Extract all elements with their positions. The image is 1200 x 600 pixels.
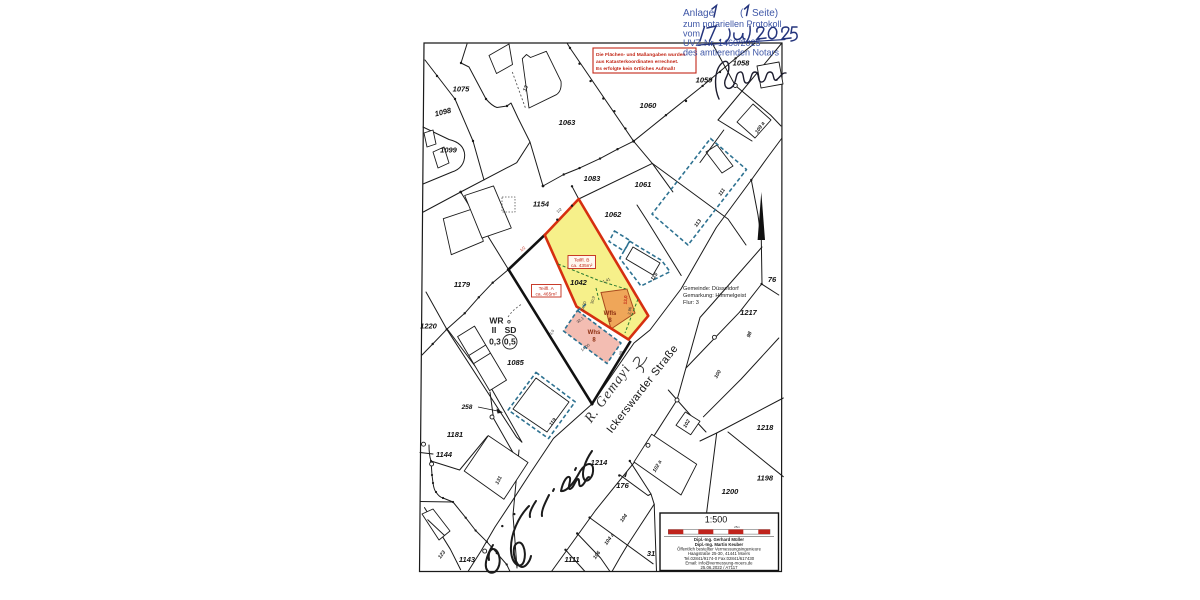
svg-text:1181: 1181 — [447, 430, 463, 439]
svg-text:Die Flächen- und Maßangaben wu: Die Flächen- und Maßangaben wurden — [596, 52, 685, 58]
svg-text:25m: 25m — [734, 525, 740, 529]
svg-text:176: 176 — [616, 481, 629, 490]
svg-text:SD: SD — [505, 325, 517, 335]
svg-text:Anlage: Anlage — [683, 8, 715, 19]
svg-text:1217: 1217 — [740, 308, 758, 317]
svg-text:1143: 1143 — [459, 555, 476, 564]
svg-text:1059: 1059 — [696, 76, 714, 85]
svg-text:1075: 1075 — [453, 85, 471, 94]
svg-text:0,3: 0,3 — [489, 337, 501, 347]
svg-text:31: 31 — [647, 549, 655, 558]
svg-text:1061: 1061 — [635, 180, 652, 189]
svg-text:0,5: 0,5 — [504, 336, 516, 346]
svg-text:1058: 1058 — [733, 59, 751, 68]
svg-text:1144: 1144 — [436, 450, 453, 459]
svg-text:Teilfl. A: Teilfl. A — [539, 286, 555, 292]
svg-text:zum notariellen Protokoll: zum notariellen Protokoll — [683, 19, 782, 29]
svg-text:vom: vom — [683, 29, 700, 39]
svg-text:II: II — [492, 325, 497, 335]
svg-text:WR: WR — [489, 316, 503, 326]
svg-text:13,0: 13,0 — [623, 295, 629, 305]
svg-text:1042: 1042 — [570, 278, 588, 287]
svg-text:Wfls: Wfls — [604, 311, 617, 317]
svg-text:1:500: 1:500 — [705, 515, 728, 525]
svg-text:1062: 1062 — [605, 210, 623, 219]
svg-text:1063: 1063 — [559, 118, 577, 127]
svg-text:ca. 435m²: ca. 435m² — [571, 263, 593, 269]
svg-text:Gemarkung: Himmelgeist: Gemarkung: Himmelgeist — [683, 293, 747, 299]
svg-text:Gemeinde: Düsseldorf: Gemeinde: Düsseldorf — [683, 286, 739, 292]
svg-text:1218: 1218 — [757, 423, 775, 432]
svg-text:des amtierenden Notars: des amtierenden Notars — [683, 48, 780, 58]
svg-text:76: 76 — [768, 275, 777, 284]
svg-text:1111: 1111 — [564, 555, 579, 564]
svg-text:Es erfolgte kein örtliches Auf: Es erfolgte kein örtliches Aufmaß! — [596, 66, 676, 72]
svg-text:ca. 465m²: ca. 465m² — [536, 292, 558, 298]
svg-text:Whs: Whs — [588, 330, 601, 336]
svg-text:258: 258 — [461, 404, 473, 411]
svg-text:1099: 1099 — [440, 146, 458, 155]
svg-text:1198: 1198 — [757, 474, 774, 483]
svg-text:1154: 1154 — [533, 200, 550, 209]
svg-text:1200: 1200 — [722, 487, 740, 496]
svg-text:1060: 1060 — [640, 101, 658, 110]
svg-text:25.06.2022 / A7117: 25.06.2022 / A7117 — [701, 565, 739, 570]
svg-text:1220: 1220 — [420, 322, 438, 331]
svg-text:1179: 1179 — [454, 280, 471, 289]
svg-text:Flur: 3: Flur: 3 — [683, 300, 699, 306]
svg-text:aus Katasterkoordinaten errech: aus Katasterkoordinaten errechnet. — [596, 59, 679, 65]
svg-text:1083: 1083 — [584, 174, 602, 183]
svg-text:Teilfl. B: Teilfl. B — [574, 257, 589, 263]
svg-text:1085: 1085 — [507, 358, 525, 367]
svg-text:Seite): Seite) — [752, 8, 778, 19]
